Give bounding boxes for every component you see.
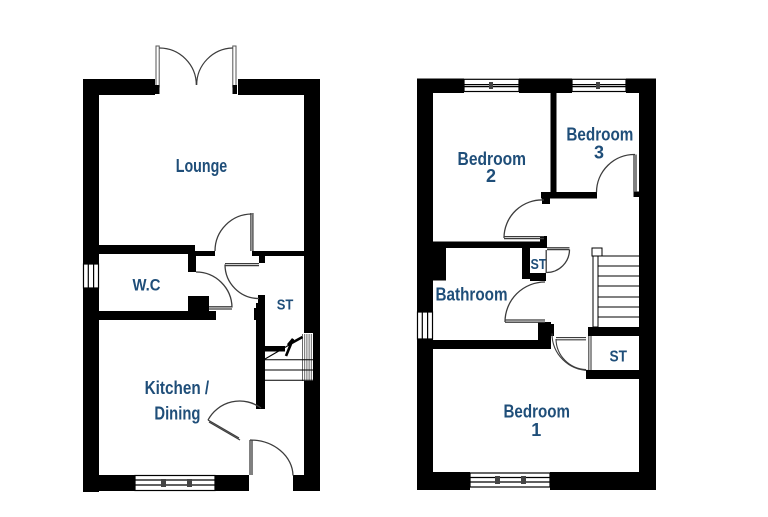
svg-text:Lounge: Lounge: [176, 156, 228, 176]
svg-text:ST: ST: [277, 297, 294, 314]
svg-text:Bedroom: Bedroom: [566, 124, 633, 144]
svg-text:2: 2: [486, 166, 496, 186]
svg-text:Bathroom: Bathroom: [436, 284, 508, 304]
svg-text:Kitchen /: Kitchen /: [145, 378, 210, 398]
svg-text:W.C: W.C: [133, 276, 161, 295]
svg-text:3: 3: [594, 143, 604, 163]
svg-text:1: 1: [531, 420, 541, 440]
svg-text:ST: ST: [531, 256, 547, 273]
svg-text:Bedroom: Bedroom: [504, 401, 570, 421]
svg-text:ST: ST: [609, 349, 627, 366]
svg-text:Dining: Dining: [154, 404, 200, 424]
